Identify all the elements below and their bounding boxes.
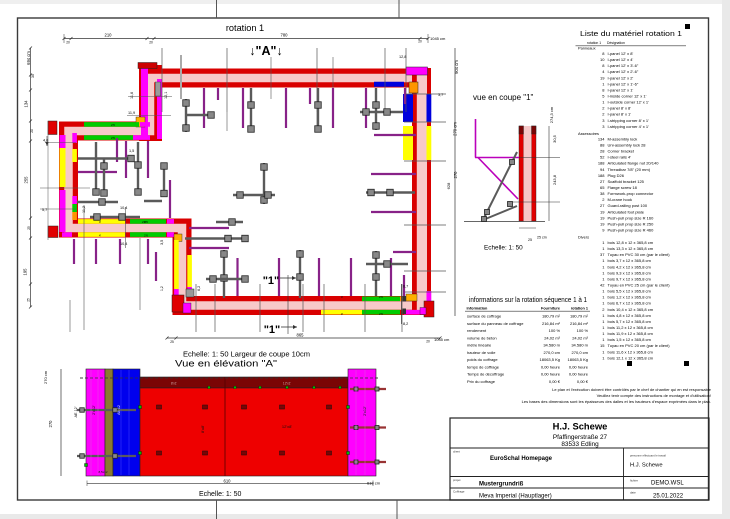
svg-text:I-inside corner 12' x 1': I-inside corner 12' x 1': [608, 93, 647, 98]
svg-text:date: date: [630, 491, 636, 495]
svg-text:client: client: [453, 450, 460, 454]
svg-text:EuroSchal Homepage: EuroSchal Homepage: [490, 456, 553, 462]
svg-text:11,9: 11,9: [128, 111, 135, 115]
svg-text:270,0 cm: 270,0 cm: [544, 350, 561, 355]
svg-text:94: 94: [600, 167, 605, 172]
svg-text:1045 cm: 1045 cm: [430, 36, 446, 41]
svg-text:I-panel 8' x 1': I-panel 8' x 1': [608, 112, 632, 117]
svg-text:25: 25: [528, 238, 532, 242]
svg-text:Echelle: 1: 50 Largeur de co: Echelle: 1: 50 Largeur de coupe 10cm: [183, 350, 310, 359]
svg-text:bois 5,7 x 12 x 365,8 cm: bois 5,7 x 12 x 365,8 cm: [608, 319, 652, 324]
svg-text:bois 9,7 x 12 x 365,8 cm: bois 9,7 x 12 x 365,8 cm: [608, 276, 652, 281]
svg-text:Flange screw 18: Flange screw 18: [608, 185, 638, 190]
svg-text:628: 628: [446, 182, 451, 189]
svg-text:rotation 1: rotation 1: [571, 307, 588, 311]
svg-text:0,00 heure: 0,00 heure: [569, 364, 589, 369]
svg-text:Liste du matériel rotation 1: Liste du matériel rotation 1: [580, 29, 682, 38]
svg-text:20: 20: [418, 40, 422, 44]
svg-text:Pfaffingerstraße 27: Pfaffingerstraße 27: [553, 434, 608, 441]
svg-text:10,4: 10,4: [120, 206, 127, 210]
svg-text:Temps de décoffrage: Temps de décoffrage: [467, 372, 505, 377]
svg-text:19: 19: [600, 75, 605, 80]
svg-text:134: 134: [24, 100, 29, 108]
svg-text:11,6: 11,6: [130, 92, 134, 99]
svg-text:3,7: 3,7: [438, 93, 443, 97]
svg-text:0,00 €: 0,00 €: [577, 379, 589, 384]
svg-text:I-panel 12' x 1'-6": I-panel 12' x 1'-6": [608, 81, 639, 86]
svg-text:27: 27: [600, 203, 605, 208]
svg-text:6,2: 6,2: [197, 286, 201, 291]
svg-text:bois 1,2 x 12 x 365,8 cm: bois 1,2 x 12 x 365,8 cm: [608, 295, 652, 300]
svg-text:28: 28: [600, 149, 605, 154]
svg-text:904 cm: 904 cm: [454, 60, 459, 74]
svg-text:780: 780: [281, 33, 289, 38]
svg-text:volume de béton: volume de béton: [467, 335, 497, 340]
svg-text:195: 195: [23, 268, 28, 276]
svg-text:19: 19: [600, 209, 605, 214]
svg-text:4,6: 4,6: [43, 139, 48, 143]
svg-text:Divers: Divers: [578, 235, 589, 240]
svg-text:37: 37: [600, 252, 605, 257]
svg-text:I-panel 12' x 4': I-panel 12' x 4': [608, 57, 634, 62]
svg-text:Mustergrundriß: Mustergrundriß: [479, 482, 524, 488]
svg-text:bois 4,2 x 12 x 365,8 cm: bois 4,2 x 12 x 365,8 cm: [608, 264, 652, 269]
svg-text:Désignation: Désignation: [607, 41, 625, 45]
svg-text:188: 188: [598, 173, 605, 178]
svg-text:210: 210: [105, 33, 113, 38]
svg-text:H.J. Schewe: H.J. Schewe: [553, 421, 608, 432]
svg-text:surface de coffrage: surface de coffrage: [467, 314, 502, 319]
svg-text:Push-pull prop size R 250: Push-pull prop size R 250: [608, 221, 655, 226]
svg-text:bois 6,7 x 12 x 365,8 cm: bois 6,7 x 12 x 365,8 cm: [608, 301, 652, 306]
svg-text:65: 65: [600, 185, 605, 190]
svg-text:rotation 1: rotation 1: [587, 41, 601, 45]
svg-text:42: 42: [600, 283, 605, 288]
svg-text:30: 30: [31, 74, 35, 78]
svg-text:2'6: 2'6: [379, 295, 383, 299]
svg-text:Articulated flange nut 20/140: Articulated flange nut 20/140: [608, 161, 660, 166]
svg-text:12,1: 12,1: [164, 92, 168, 99]
svg-text:216,84 m²: 216,84 m²: [542, 321, 561, 326]
svg-text:18063,5 Kg: 18063,5 Kg: [540, 357, 560, 362]
svg-text:Corner bracket: Corner bracket: [608, 149, 635, 154]
svg-text:Prix du coffrage: Prix du coffrage: [467, 379, 496, 384]
svg-text:188: 188: [598, 161, 605, 166]
svg-text:Push-pull prop size R 160: Push-pull prop size R 160: [608, 215, 655, 220]
svg-text:H.J. Schewe: H.J. Schewe: [630, 463, 663, 469]
svg-text:0,00 heure: 0,00 heure: [541, 364, 561, 369]
svg-text:12'x8': 12'x8': [282, 424, 292, 429]
svg-text:Vue en élévation "A": Vue en élévation "A": [175, 359, 277, 369]
svg-text:12'x1': 12'x1': [283, 382, 292, 386]
svg-text:Assessoires: Assessoires: [578, 131, 599, 136]
svg-text:38: 38: [600, 191, 605, 196]
svg-text:34.580 m: 34.580 m: [543, 343, 560, 348]
svg-text:hauteur de voile: hauteur de voile: [467, 350, 496, 355]
svg-text:25: 25: [170, 340, 174, 344]
svg-text:bois 11,2 x 12 x 365,8 cm: bois 11,2 x 12 x 365,8 cm: [608, 325, 654, 330]
svg-text:temps de coffrage: temps de coffrage: [467, 364, 500, 369]
svg-text:10,4: 10,4: [120, 242, 127, 246]
svg-text:2'6: 2'6: [144, 233, 148, 237]
svg-text:I-panel 12' x 2': I-panel 12' x 2': [608, 75, 634, 80]
svg-text:243,8: 243,8: [552, 174, 557, 185]
svg-text:Fourniture: Fourniture: [541, 307, 560, 311]
svg-text:Uni-assembly lock 28: Uni-assembly lock 28: [608, 142, 647, 147]
svg-text:270 cm: 270 cm: [43, 370, 48, 384]
svg-text:I-panel 12' x 3'-6": I-panel 12' x 3'-6": [608, 63, 639, 68]
svg-text:poids du coffrage: poids du coffrage: [467, 357, 498, 362]
svg-text:Plug D26: Plug D26: [608, 173, 625, 178]
svg-text:20: 20: [30, 129, 34, 133]
svg-text:vue en coupe "1": vue en coupe "1": [473, 93, 534, 102]
svg-text:Echelle: 1: 50: Echelle: 1: 50: [484, 245, 523, 252]
svg-text:2'6: 2'6: [379, 312, 383, 316]
svg-text:mètre linéaire: mètre linéaire: [467, 343, 492, 348]
svg-text:11,2: 11,2: [82, 206, 86, 213]
svg-text:5,7: 5,7: [42, 208, 47, 212]
svg-text:25: 25: [27, 226, 31, 230]
svg-text:Tuyau en PVC 25 cm (par le cli: Tuyau en PVC 25 cm (par le client): [608, 283, 671, 288]
svg-text:rendement: rendement: [467, 328, 487, 333]
svg-text:24,02 m³: 24,02 m³: [544, 335, 560, 340]
svg-text:I-panel 12' x 1': I-panel 12' x 1': [608, 87, 634, 92]
svg-text:18063,5 Kg: 18063,5 Kg: [568, 357, 588, 362]
svg-text:Tuyau en PVC 20 cm (par le cli: Tuyau en PVC 20 cm (par le client): [608, 343, 671, 348]
svg-text:180,79 m²: 180,79 m²: [570, 314, 589, 319]
svg-text:20: 20: [426, 340, 430, 344]
svg-text:surface du panneau de coffrage: surface du panneau de coffrage: [467, 321, 524, 326]
svg-text:0,00 heure: 0,00 heure: [541, 372, 561, 377]
svg-text:"1": "1": [264, 324, 281, 336]
svg-text:865: 865: [297, 333, 305, 338]
svg-text:2'x12': 2'x12': [363, 406, 367, 416]
svg-text:AE 12: AE 12: [117, 405, 121, 415]
svg-text:6,7: 6,7: [403, 285, 408, 289]
svg-text:bois 5,5 x 12 x 365,8 cm: bois 5,5 x 12 x 365,8 cm: [608, 289, 652, 294]
svg-text:AE 12': AE 12': [74, 406, 78, 417]
svg-text:610: 610: [224, 479, 232, 484]
svg-text:25: 25: [27, 298, 31, 302]
svg-text:"1": "1": [263, 275, 280, 287]
svg-text:bois 3,7 x 12 x 365,8 cm: bois 3,7 x 12 x 365,8 cm: [608, 258, 652, 263]
svg-text:I-stripping corner 8' x 1': I-stripping corner 8' x 1': [608, 118, 650, 123]
svg-text:25 cm: 25 cm: [537, 236, 547, 240]
svg-text:0,00 €: 0,00 €: [549, 379, 561, 384]
svg-text:DEMO.WSL: DEMO.WSL: [651, 481, 684, 487]
svg-text:Coffrage: Coffrage: [453, 490, 465, 494]
svg-text:1,5: 1,5: [129, 149, 134, 153]
svg-text:Push-pull prop size R 460: Push-pull prop size R 460: [608, 227, 655, 232]
svg-text:bois 9,3 x 12 x 365,8 cm: bois 9,3 x 12 x 365,8 cm: [608, 270, 652, 275]
svg-text:bois 10,4 x 12 x 365,8 cm: bois 10,4 x 12 x 365,8 cm: [608, 307, 654, 312]
svg-text:88: 88: [600, 142, 605, 147]
svg-text:52: 52: [600, 155, 605, 160]
svg-text:I-stripping corner 4' x 1': I-stripping corner 4' x 1': [608, 124, 650, 129]
svg-text:Panneaux: Panneaux: [578, 46, 596, 51]
svg-text:M-assembly lock: M-assembly lock: [608, 136, 638, 141]
svg-text:83533 Edling: 83533 Edling: [561, 441, 599, 448]
svg-text:20: 20: [66, 41, 70, 45]
svg-text:I-panel 12' x 2'-6": I-panel 12' x 2'-6": [608, 69, 639, 74]
svg-text:Scaffold bracket 125: Scaffold bracket 125: [608, 179, 645, 184]
svg-text:10: 10: [600, 57, 605, 62]
svg-text:694 cm: 694 cm: [26, 51, 31, 65]
svg-text:bois 11,9 x 12 x 365,8 cm: bois 11,9 x 12 x 365,8 cm: [608, 331, 654, 336]
svg-text:2'6: 2'6: [111, 136, 115, 140]
svg-text:Formwork-prop connector: Formwork-prop connector: [608, 191, 654, 196]
svg-text:270,0 cm: 270,0 cm: [572, 350, 589, 355]
svg-text:15: 15: [600, 343, 605, 348]
svg-text:bois 13,3 x 12 x 365,8 cm: bois 13,3 x 12 x 365,8 cm: [608, 246, 654, 251]
svg-text:Threadbar 7/8" (20 mm): Threadbar 7/8" (20 mm): [608, 167, 651, 172]
svg-text:Le plan et l'exécution doivent: Le plan et l'exécution doivent être cont…: [552, 387, 712, 392]
svg-text:610 cm: 610 cm: [367, 481, 381, 486]
svg-text:19: 19: [600, 221, 605, 226]
svg-text:Les bases des dimensions sont: Les bases des dimensions sont les épaiss…: [522, 399, 711, 404]
svg-text:255: 255: [24, 176, 29, 184]
svg-text:Echelle: 1: 50: Echelle: 1: 50: [199, 491, 242, 498]
svg-text:bois 12,1 x 12 x 365,8 cm: bois 12,1 x 12 x 365,8 cm: [608, 355, 654, 360]
svg-text:informations sur la rotation: informations sur la rotation séquence 1 …: [469, 295, 587, 304]
svg-text:216,84 m²: 216,84 m²: [570, 321, 589, 326]
svg-text:270: 270: [48, 420, 53, 428]
svg-text:projet: projet: [453, 478, 461, 482]
svg-text:180,79 m²: 180,79 m²: [542, 314, 561, 319]
svg-text:100 %: 100 %: [549, 328, 561, 333]
svg-text:19: 19: [600, 215, 605, 220]
svg-text:Tuyau en PVC 30 cm (par le cli: Tuyau en PVC 30 cm (par le client): [608, 252, 671, 257]
svg-text:34.580 m: 34.580 m: [571, 343, 588, 348]
svg-text:2'6: 2'6: [144, 220, 148, 224]
svg-text:8'x1': 8'x1': [171, 382, 178, 386]
svg-text:270 cm: 270 cm: [453, 122, 458, 136]
svg-text:I-panel 8' x 8': I-panel 8' x 8': [608, 106, 632, 111]
svg-text:8'x8': 8'x8': [200, 425, 205, 433]
svg-text:25.01.2022: 25.01.2022: [653, 494, 684, 500]
svg-text:1045 cm: 1045 cm: [434, 337, 450, 342]
svg-text:Articulated foot plate: Articulated foot plate: [608, 209, 645, 214]
svg-text:↓"A"↓: ↓"A"↓: [249, 44, 282, 58]
svg-text:3,5: 3,5: [160, 240, 164, 245]
svg-text:2'x12': 2'x12': [92, 405, 96, 415]
svg-text:134: 134: [598, 136, 605, 141]
svg-text:I-panel 12' x 8': I-panel 12' x 8': [608, 51, 634, 56]
svg-text:Meva Imperial (Hauptlager): Meva Imperial (Hauptlager): [479, 494, 552, 500]
svg-text:I-outside corner 12' x 1': I-outside corner 12' x 1': [608, 100, 650, 105]
svg-text:20: 20: [149, 41, 153, 45]
svg-text:bois 11,6 x 12 x 365,8 cm: bois 11,6 x 12 x 365,8 cm: [608, 349, 654, 354]
svg-text:8,2: 8,2: [403, 322, 408, 326]
svg-text:bois 1,5 x 12 x 365,8 cm: bois 1,5 x 12 x 365,8 cm: [608, 337, 652, 342]
svg-text:30,5: 30,5: [552, 134, 557, 143]
svg-text:I-steel rails 4': I-steel rails 4': [608, 155, 632, 160]
svg-text:fichier: fichier: [630, 479, 638, 483]
svg-text:Veuillez tenir compte des inst: Veuillez tenir compte des instructions d…: [597, 393, 711, 398]
svg-text:12,8: 12,8: [399, 55, 406, 59]
svg-text:M-crane hook: M-crane hook: [608, 197, 632, 202]
svg-text:27: 27: [600, 179, 605, 184]
svg-text:bois 12,8 x 12 x 365,8 cm: bois 12,8 x 12 x 365,8 cm: [608, 240, 654, 245]
svg-text:24,02 m³: 24,02 m³: [572, 335, 588, 340]
svg-text:274,3 cm: 274,3 cm: [549, 106, 554, 123]
svg-text:1,2: 1,2: [160, 286, 164, 291]
svg-text:0,00 heure: 0,00 heure: [569, 372, 589, 377]
svg-text:100 %: 100 %: [577, 328, 589, 333]
svg-text:Guard-railing post 100: Guard-railing post 100: [608, 203, 648, 208]
svg-text:bois 4,8 x 12 x 365,8 cm: bois 4,8 x 12 x 365,8 cm: [608, 313, 652, 318]
svg-text:rotation 1: rotation 1: [226, 23, 264, 33]
svg-text:2'6: 2'6: [111, 123, 115, 127]
svg-text:270: 270: [453, 171, 458, 179]
svg-text:8,5x12: 8,5x12: [98, 470, 107, 474]
svg-text:personne effectuant le travail: personne effectuant le travail: [630, 454, 666, 458]
svg-text:information: information: [467, 307, 489, 311]
